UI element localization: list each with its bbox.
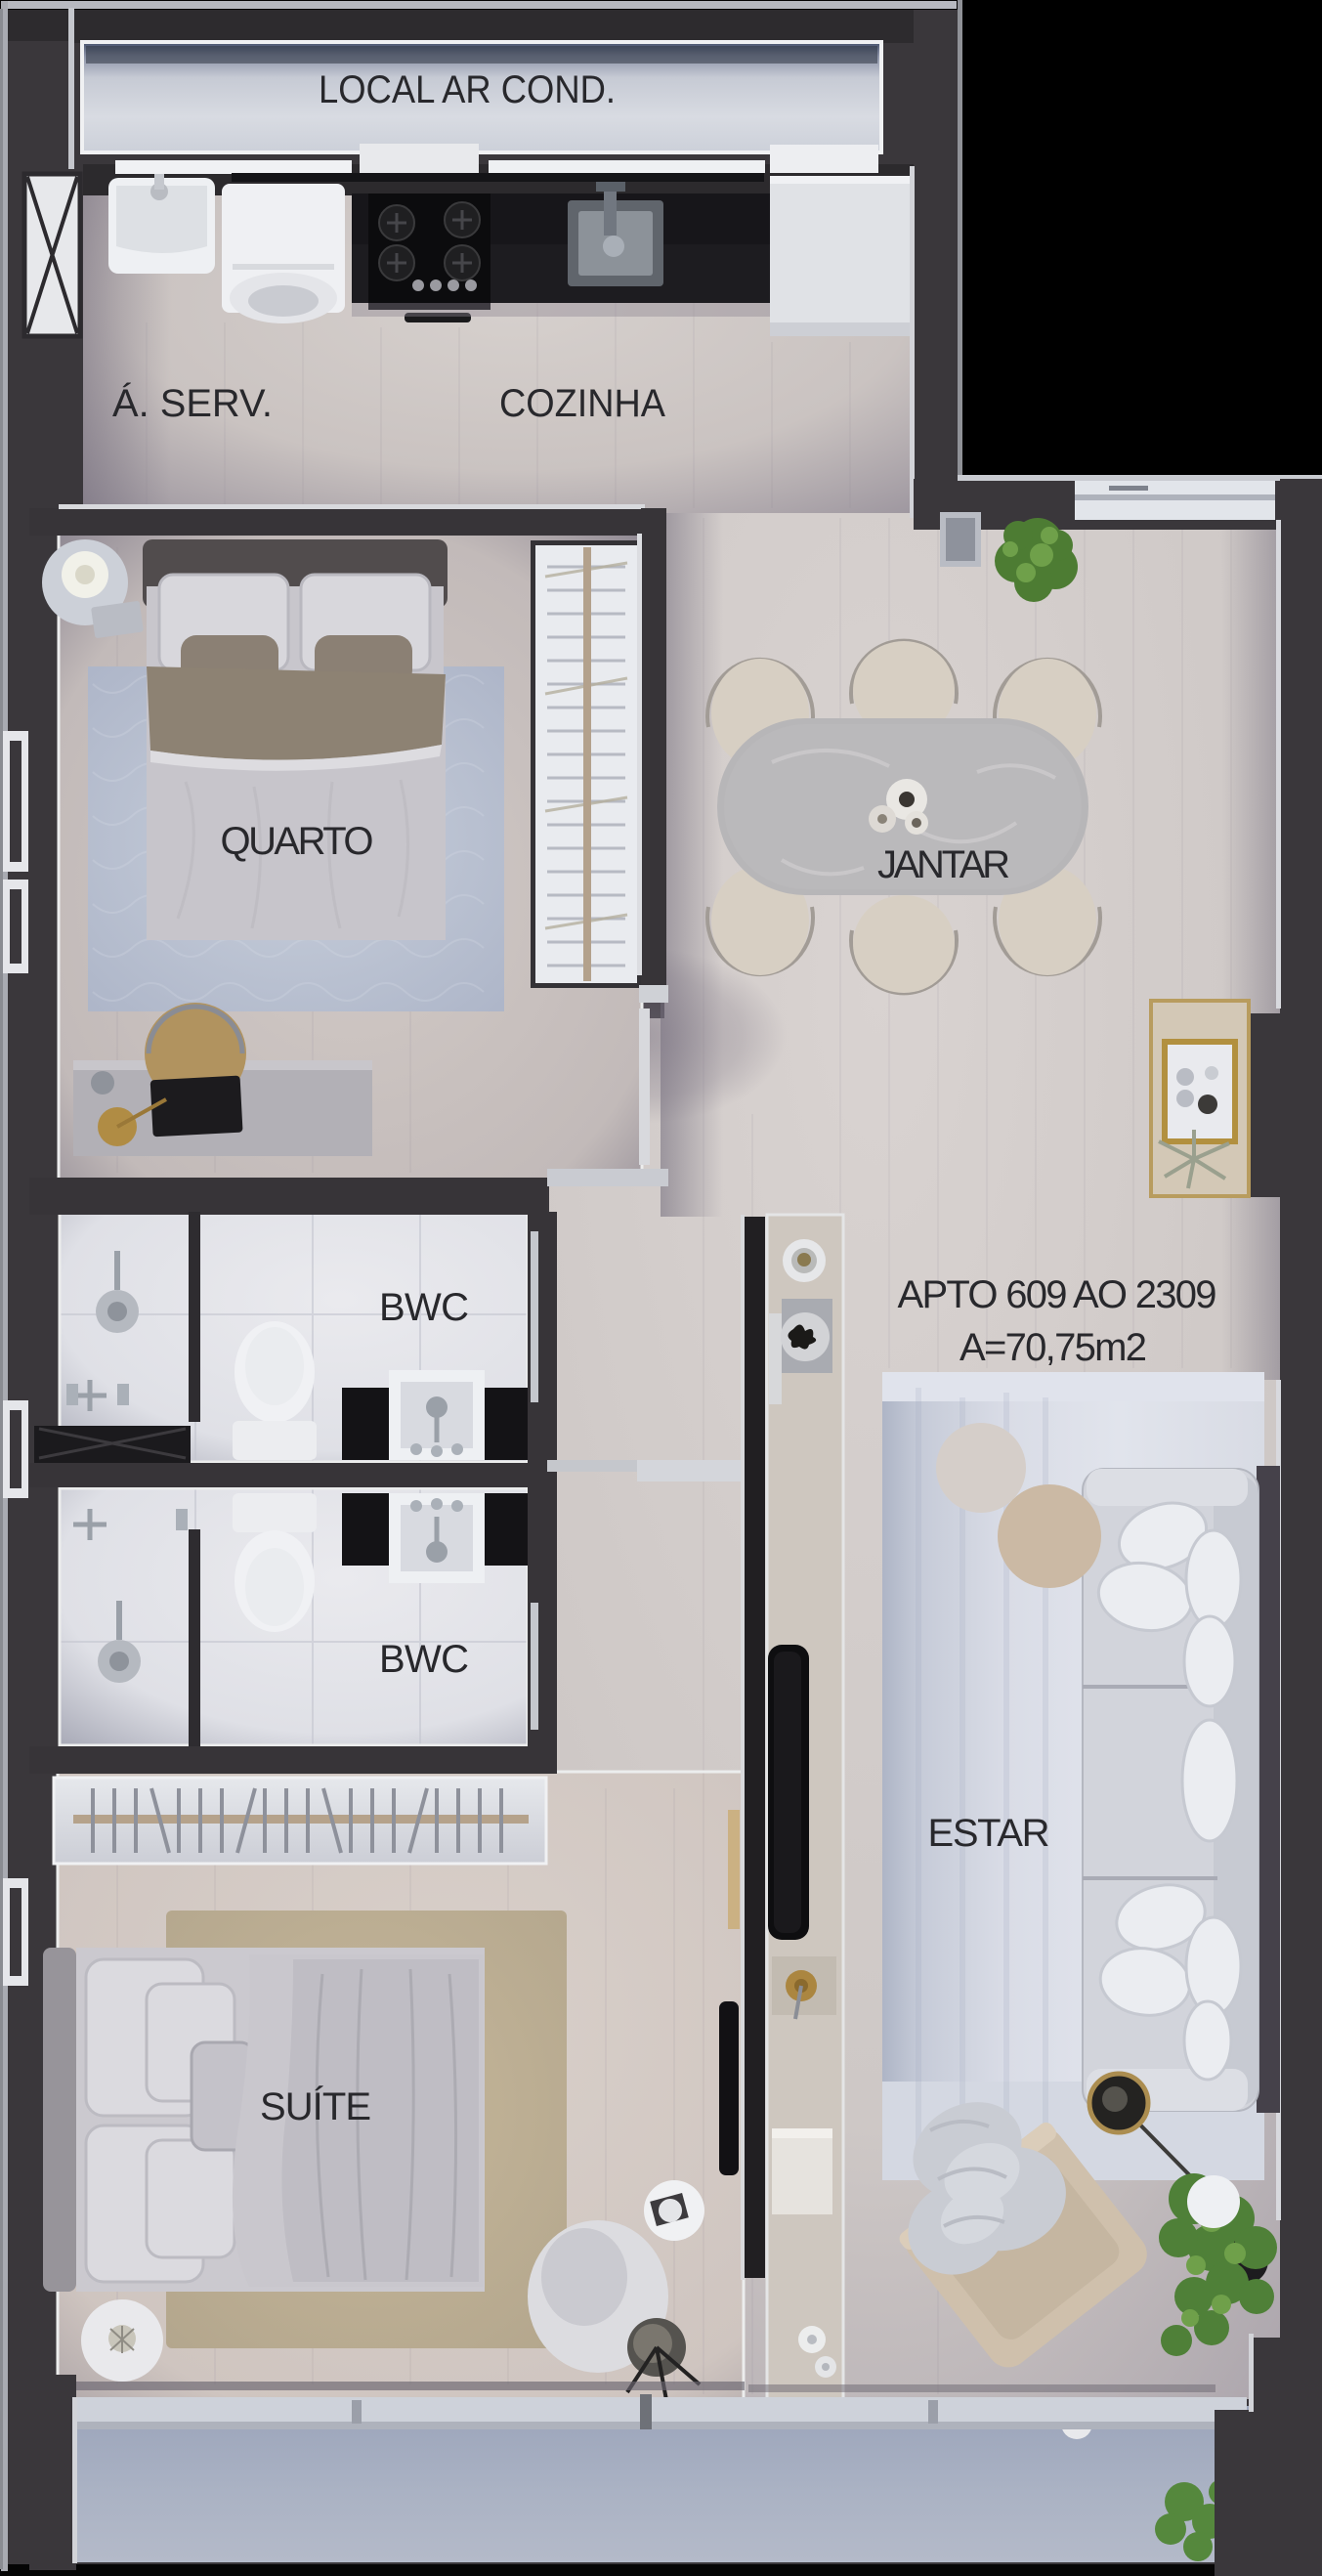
svg-text:ESTAR: ESTAR (928, 1812, 1050, 1855)
svg-text:BWC: BWC (379, 1286, 469, 1329)
svg-text:LOCAL AR COND.: LOCAL AR COND. (319, 68, 616, 111)
svg-text:SUÍTE: SUÍTE (260, 2084, 371, 2128)
svg-text:A=70,75m2: A=70,75m2 (960, 1326, 1147, 1369)
svg-text:JANTAR: JANTAR (877, 843, 1010, 886)
svg-text:BWC: BWC (379, 1638, 469, 1681)
svg-text:APTO 609 AO 2309: APTO 609 AO 2309 (898, 1273, 1217, 1316)
svg-text:QUARTO: QUARTO (221, 820, 374, 863)
svg-text:COZINHA: COZINHA (499, 382, 665, 425)
svg-text:Á. SERV.: Á. SERV. (112, 381, 273, 425)
